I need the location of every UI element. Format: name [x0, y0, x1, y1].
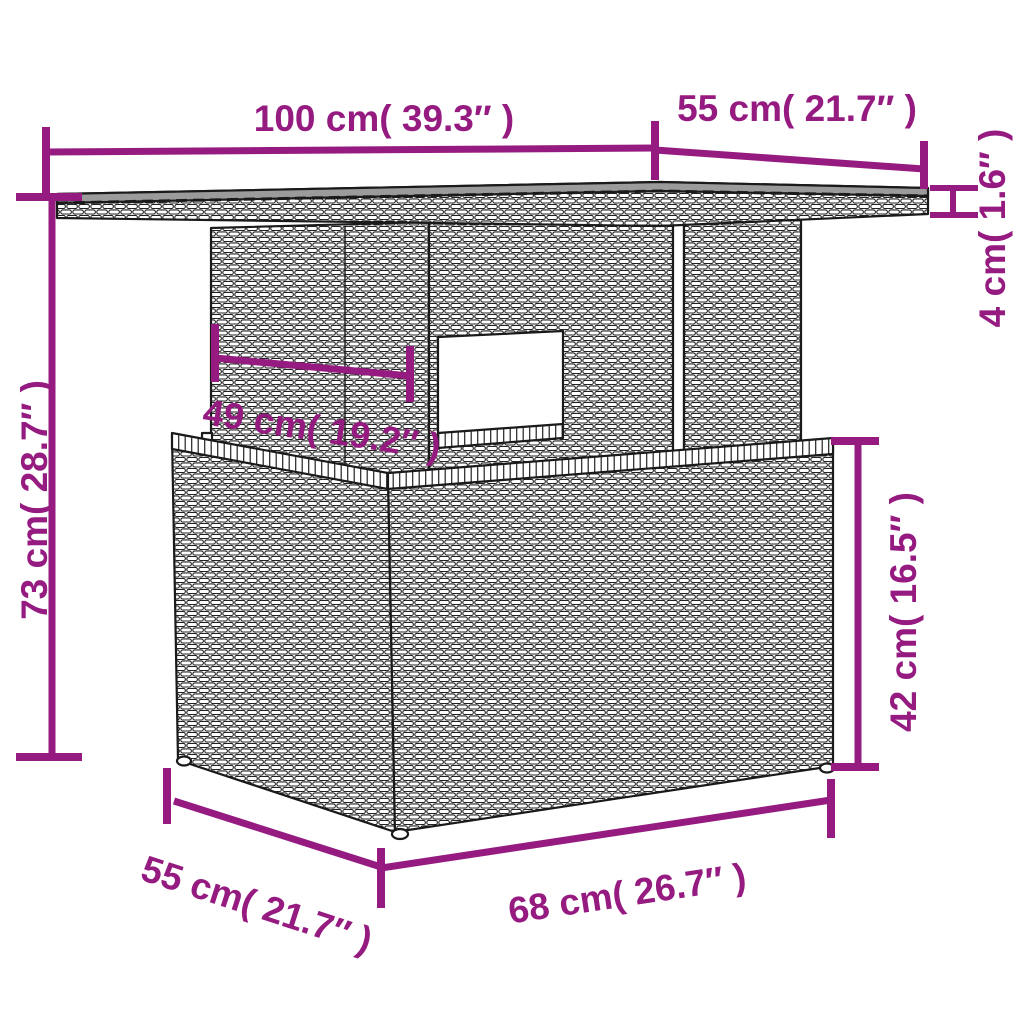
label-top-depth: 55 cm( 21.7″ ) [677, 88, 917, 129]
right-leg-panel [684, 210, 801, 452]
base-right-face [388, 441, 833, 832]
dimension-diagram: 100 cm( 39.3″ ) 55 cm( 21.7″ ) 4 cm( 1.6… [0, 0, 1024, 1024]
label-top-width: 100 cm( 39.3″ ) [254, 98, 514, 139]
foot-left [177, 757, 191, 766]
label-base-height: 42 cm( 16.5″ ) [883, 492, 924, 732]
foot-front [392, 829, 408, 839]
label-top-thickness: 4 cm( 1.6″ ) [972, 129, 1013, 328]
pedestal-leg-gap [673, 214, 684, 452]
label-overall-height: 73 cm( 28.7″ ) [14, 380, 55, 620]
